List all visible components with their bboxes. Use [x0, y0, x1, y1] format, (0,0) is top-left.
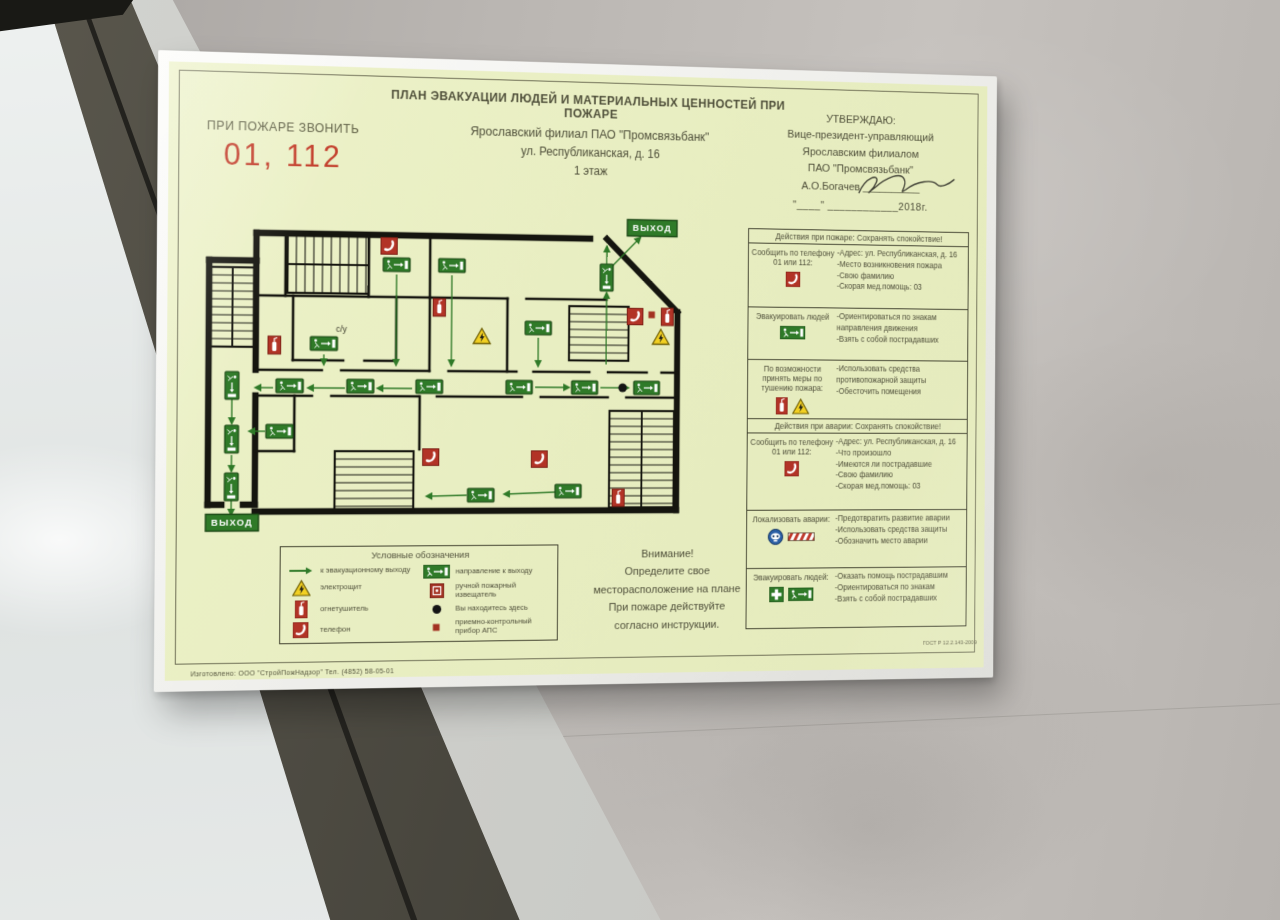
signature — [853, 168, 957, 204]
exit-direction-sign — [572, 381, 598, 395]
svg-text:ВЫХОД: ВЫХОД — [633, 223, 672, 234]
svg-text:ВЫХОД: ВЫХОД — [211, 518, 253, 529]
stair-divider — [288, 264, 369, 265]
fire-extinguisher-icon — [433, 299, 445, 317]
exit-direction-sign — [600, 264, 613, 291]
stair-divider — [641, 411, 642, 507]
phone-icon — [381, 237, 397, 254]
legend-label: приемно-контрольный прибор АПС — [455, 617, 551, 636]
legend-left-column: к эвакуационному выходуэлектрощитогнетуш… — [286, 565, 419, 638]
instructions-panel: Действия при пожаре: Сохранять спокойств… — [746, 228, 969, 629]
stair-step — [569, 345, 628, 346]
cross-icon — [769, 587, 784, 602]
legend-label: телефон — [320, 625, 351, 634]
phone-icon — [784, 461, 798, 476]
barrier-icon — [788, 532, 815, 541]
stair-divider — [232, 267, 233, 347]
phone-icon — [293, 622, 309, 638]
arrow-icon — [288, 566, 313, 576]
instruction-row: По возможности принять меры по тушению п… — [748, 360, 967, 420]
attention-line: Определите свое — [566, 563, 768, 582]
phone-icon — [531, 451, 547, 468]
tri-icon — [292, 580, 311, 597]
photo-of-evacuation-plan: ПРИ ПОЖАРЕ ЗВОНИТЬ 01, 112 ПЛАН ЭВАКУАЦИ… — [0, 0, 1280, 920]
stair-step — [569, 337, 628, 338]
instruction-row: Сообщить по телефону 01 или 112:-Адрес: … — [749, 243, 968, 310]
phone-icon — [786, 272, 800, 287]
inner-wall — [256, 295, 430, 297]
fire-extinguisher-icon — [612, 489, 624, 506]
exit-direction-sign — [266, 424, 293, 438]
outer-wall — [606, 239, 677, 312]
instruction-row: Эвакуировать людей-Ориентироваться по зн… — [748, 307, 967, 361]
legend-item: ручной пожарный извещатель — [422, 581, 551, 600]
exit-direction-sign — [225, 371, 239, 399]
instruction-details: -Оказать помощь пострадавшим-Ориентирова… — [835, 567, 966, 627]
exit-direction-sign — [416, 380, 443, 394]
evacuation-route-arrow — [504, 492, 555, 494]
emergency-call-numbers: 01, 112 — [194, 136, 372, 176]
aps-device-icon — [648, 311, 654, 318]
outer-wall — [255, 510, 676, 512]
instruction-action: Эвакуировать людей — [748, 307, 837, 359]
tri-icon — [792, 398, 809, 414]
instruction-row: Сообщить по телефону 01 или 112:-Адрес: … — [747, 433, 967, 510]
mask-icon — [768, 529, 783, 545]
exitsign-icon — [423, 565, 450, 579]
exit-direction-sign — [276, 379, 303, 393]
exitsign-icon — [788, 587, 813, 601]
legend-box: Условные обозначения к эвакуационному вы… — [279, 544, 558, 644]
legend-label: огнетушитель — [320, 604, 368, 613]
approval-block: УТВЕРЖДАЮ:Вице-президент-управляющийЯрос… — [745, 110, 975, 217]
evacuation-route-arrow — [396, 275, 397, 365]
staircase — [334, 451, 413, 510]
exit-direction-sign — [439, 258, 466, 272]
inner-wall — [341, 370, 429, 371]
attention-line: Внимание! — [566, 545, 768, 564]
legend-label: электрощит — [320, 583, 361, 592]
aps-icon — [432, 623, 440, 631]
legend-label: направление к выходу — [456, 566, 533, 575]
instruction-details: -Предотвратить развитие аварии-Использов… — [835, 510, 966, 567]
legend-item: Вы находитесь здесь — [422, 603, 551, 615]
you-are-here-dot — [618, 383, 627, 392]
attention-note: Внимание!Определите своеместорасположени… — [565, 545, 768, 635]
exitsign-icon — [780, 326, 805, 340]
exit-direction-sign — [506, 380, 532, 394]
legend-right-column: направление к выходуручной пожарный изве… — [422, 564, 552, 637]
fire-extinguisher-icon — [661, 308, 673, 325]
evacuation-plan-board: ПРИ ПОЖАРЕ ЗВОНИТЬ 01, 112 ПЛАН ЭВАКУАЦИ… — [154, 50, 997, 692]
exit-direction-sign — [634, 381, 660, 395]
instruction-details: -Ориентироваться по знакам направления д… — [836, 308, 967, 360]
exit-sign-bottom: ВЫХОД — [205, 514, 258, 531]
instruction-row: Эвакуировать людей:-Оказать помощь постр… — [746, 567, 965, 628]
stair-step — [569, 353, 628, 354]
electrical-panel-icon — [652, 329, 669, 344]
plan-sheet: ПРИ ПОЖАРЕ ЗВОНИТЬ 01, 112 ПЛАН ЭВАКУАЦИ… — [165, 61, 988, 680]
exit-sign-top: ВЫХОД — [627, 220, 677, 237]
instruction-action: Сообщить по телефону 01 или 112: — [747, 433, 836, 509]
outer-wall — [676, 312, 677, 510]
stair-step — [569, 322, 628, 323]
inner-wall — [429, 236, 430, 371]
legend-item: приемно-контрольный прибор АПС — [422, 617, 551, 636]
legend-item: к эвакуационному выходу — [286, 565, 418, 576]
electrical-panel-icon — [473, 328, 490, 343]
approver-name: А.О.Богачев __________ — [801, 179, 919, 198]
exit-direction-sign — [347, 379, 374, 393]
emergency-call-block: ПРИ ПОЖАРЕ ЗВОНИТЬ 01, 112 — [194, 118, 372, 176]
ext-icon — [294, 600, 307, 618]
callpoint-icon — [429, 584, 443, 599]
instruction-details: -Использовать средства противопожарной з… — [836, 361, 967, 419]
exit-direction-sign — [225, 425, 239, 453]
manufacturer-line: Изготовлено: ООО "СтройПожНадзор" Тел. (… — [191, 668, 395, 678]
legend-label: ручной пожарный извещатель — [455, 581, 551, 599]
legend-label: Вы находитесь здесь — [455, 604, 527, 614]
evacuation-route-arrow — [451, 275, 452, 365]
exit-direction-sign — [467, 488, 494, 502]
legend-item: огнетушитель — [286, 599, 418, 618]
fire-extinguisher-icon — [268, 336, 281, 354]
phone-icon — [627, 308, 643, 325]
exit-direction-sign — [310, 337, 337, 351]
exit-direction-sign — [383, 258, 410, 272]
floor-plan: ВЫХОДВЫХОДс/у — [186, 210, 720, 547]
legend-item: электрощит — [286, 579, 418, 597]
outer-wall — [208, 260, 210, 505]
attention-line: согласно инструкции. — [565, 615, 767, 635]
legend-label: к эвакуационному выходу — [320, 566, 410, 576]
instructions-section-header: Действия при аварии: Сохранять спокойств… — [748, 419, 967, 434]
dot-icon — [431, 604, 442, 615]
stair-step — [569, 314, 628, 315]
instruction-row: Локализовать аварии:-Предотвратить разви… — [747, 510, 966, 569]
instruction-details: -Адрес: ул. Республиканская, д. 16-Место… — [837, 245, 968, 309]
evacuation-route-arrow — [427, 495, 467, 496]
instruction-details: -Адрес: ул. Республиканская, д. 16-Что п… — [835, 434, 966, 510]
attention-line: месторасположение на плане — [565, 580, 767, 600]
exit-direction-sign — [555, 484, 581, 498]
inner-wall — [526, 299, 606, 300]
phone-icon — [423, 449, 439, 466]
emergency-call-label: ПРИ ПОЖАРЕ ЗВОНИТЬ — [194, 118, 371, 136]
outer-wall — [209, 260, 256, 261]
legend-item: телефон — [286, 621, 418, 638]
room-label: с/у — [336, 324, 348, 334]
outer-wall — [256, 261, 257, 370]
instruction-action: По возможности принять меры по тушению п… — [748, 360, 837, 419]
legend-item: направление к выходу — [422, 564, 551, 579]
exit-direction-sign — [224, 473, 238, 501]
gost-reference: ГОСТ Р 12.2.143-2009 — [923, 640, 977, 646]
stair-step — [569, 329, 628, 330]
legend-title: Условные обозначения — [286, 549, 551, 562]
instruction-action: Сообщить по телефону 01 или 112: — [749, 243, 838, 307]
exit-direction-sign — [525, 321, 551, 335]
ext-icon — [775, 397, 787, 414]
